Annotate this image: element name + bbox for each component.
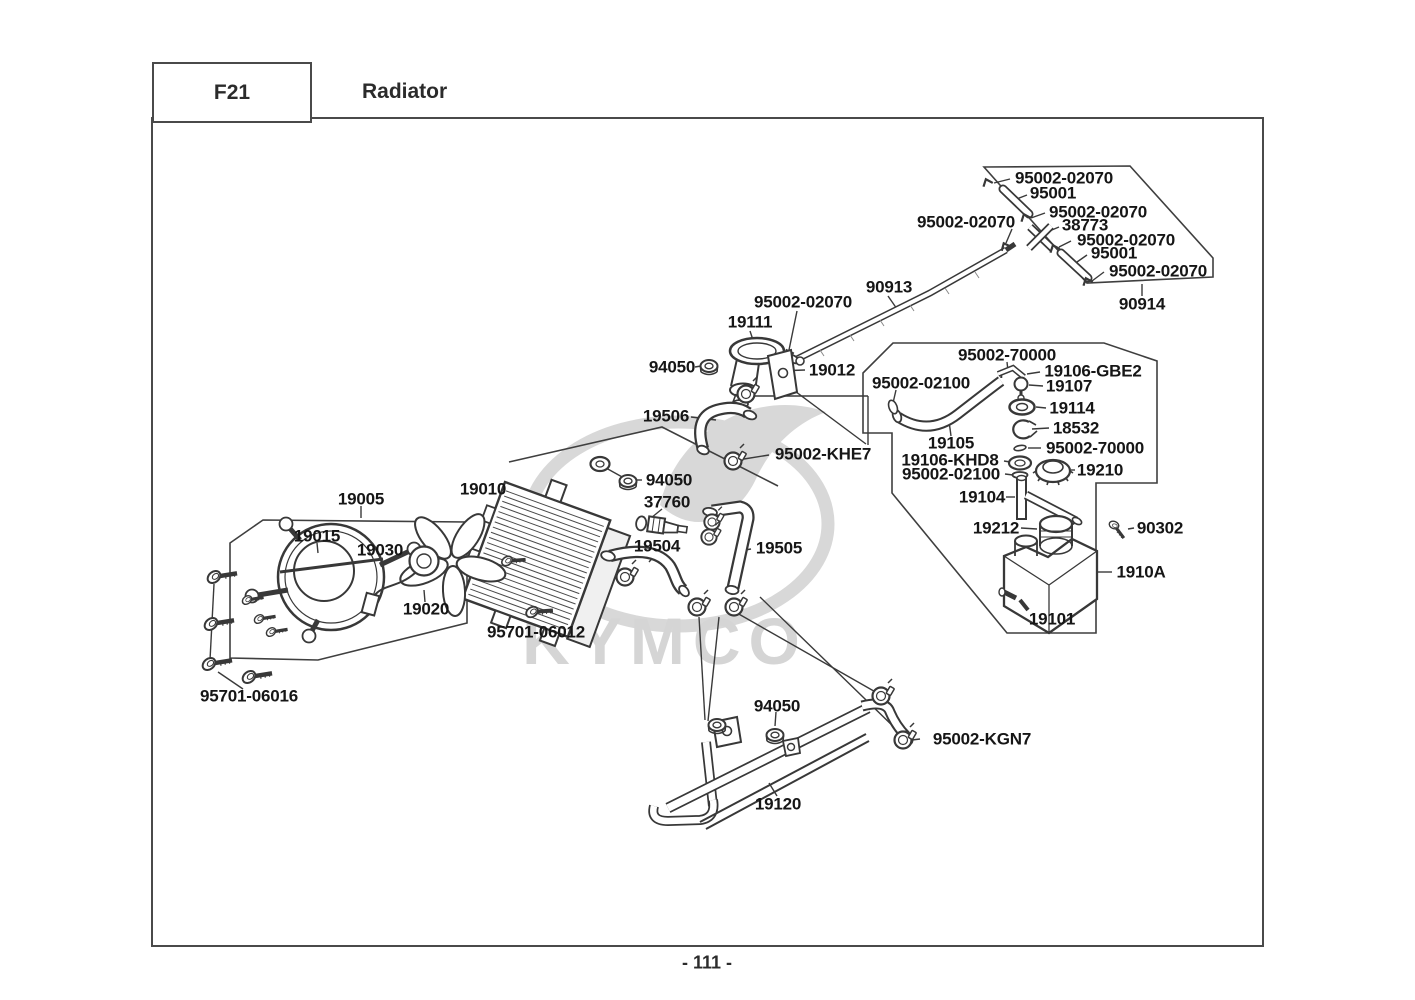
tank-screw-drawing	[1106, 520, 1128, 539]
part-label-95001-a: 95001	[1030, 185, 1076, 202]
part-label-19005: 19005	[338, 491, 384, 508]
part-label-95002-02070-e: 95002-02070	[917, 214, 1015, 231]
part-label-94050-b: 94050	[646, 472, 692, 489]
catalog-page: KYMCO	[0, 0, 1415, 1000]
exploded-parts-diagram: KYMCO	[0, 0, 1415, 1000]
part-label-19120: 19120	[755, 796, 801, 813]
part-label-19015: 19015	[294, 528, 340, 545]
part-label-19105: 19105	[928, 435, 974, 452]
part-label-19210: 19210	[1077, 462, 1123, 479]
nut-icon	[701, 360, 718, 375]
page-number: - 111 -	[682, 953, 732, 974]
part-label-90302: 90302	[1137, 520, 1183, 537]
part-label-94050-a: 94050	[649, 359, 695, 376]
part-label-19114: 19114	[1049, 400, 1094, 417]
part-label-95701-06016: 95701-06016	[200, 688, 298, 705]
part-label-95002-khe7: 95002-KHE7	[775, 446, 871, 463]
part-label-90914: 90914	[1119, 296, 1165, 313]
part-label-95002-70000-b: 95002-70000	[1046, 440, 1144, 457]
filler-bracket-drawing	[768, 350, 804, 399]
part-label-90913: 90913	[866, 279, 912, 296]
washer-nut-drawing	[591, 457, 637, 490]
section-code: F21	[214, 81, 250, 105]
part-label-95701-06012: 95701-06012	[487, 624, 585, 641]
reserve-cap-drawing	[1033, 460, 1073, 485]
part-label-95002-70000-a: 95002-70000	[958, 347, 1056, 364]
page-title: Radiator	[362, 80, 447, 104]
part-label-19010: 19010	[460, 481, 506, 498]
part-label-95002-02100-a: 95002-02100	[872, 375, 970, 392]
part-label-95001-b: 95001	[1091, 245, 1137, 262]
part-label-19104: 19104	[959, 489, 1005, 506]
part-label-19101: 19101	[1029, 611, 1075, 628]
part-label-19504: 19504	[634, 538, 680, 555]
part-label-18532: 18532	[1053, 420, 1099, 437]
part-label-95002-02070-d: 95002-02070	[1109, 263, 1207, 280]
part-label-19012: 19012	[809, 362, 855, 379]
part-label-1910a: 1910A	[1116, 564, 1165, 581]
part-label-19505: 19505	[756, 540, 802, 557]
part-label-95002-kgn7: 95002-KGN7	[933, 731, 1031, 748]
part-label-19030: 19030	[357, 542, 403, 559]
overflow-tube-b-drawing	[782, 177, 1093, 357]
part-label-95002-02100-b: 95002-02100	[902, 466, 1000, 483]
part-label-95002-02070-f: 95002-02070	[754, 294, 852, 311]
part-label-37760: 37760	[644, 494, 690, 511]
part-label-19111: 19111	[728, 314, 772, 331]
part-label-19506: 19506	[643, 408, 689, 425]
three-way-joint-drawing	[1029, 226, 1053, 249]
part-label-19107: 19107	[1046, 378, 1092, 395]
part-label-94050-c: 94050	[754, 698, 800, 715]
part-label-19212: 19212	[973, 520, 1019, 537]
section-code-box: F21	[152, 62, 312, 123]
mounting-bolts-drawing	[200, 560, 288, 691]
part-label-19020: 19020	[403, 601, 449, 618]
